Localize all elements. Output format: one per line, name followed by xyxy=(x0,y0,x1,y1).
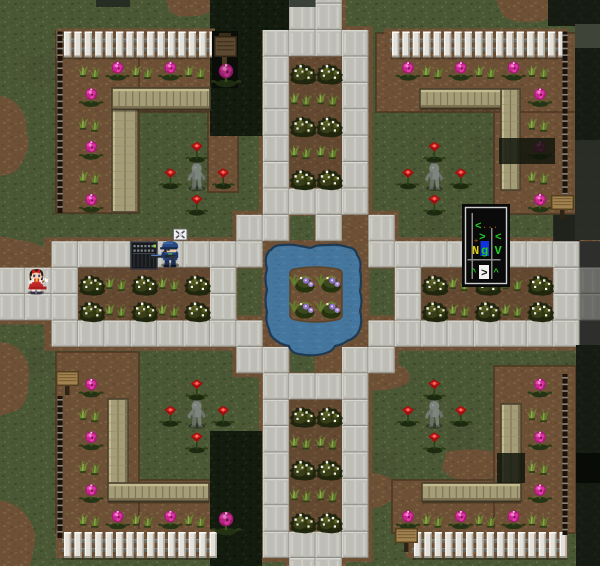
svg-text:...: ... xyxy=(482,221,498,231)
svg-text:N: N xyxy=(472,244,479,258)
svg-text:^: ^ xyxy=(471,268,477,278)
svg-text:g: g xyxy=(481,244,488,258)
svg-text:>: > xyxy=(481,268,488,280)
svg-text:^: ^ xyxy=(494,268,500,278)
svg-text:<: < xyxy=(495,232,502,244)
svg-text:V: V xyxy=(495,244,503,258)
